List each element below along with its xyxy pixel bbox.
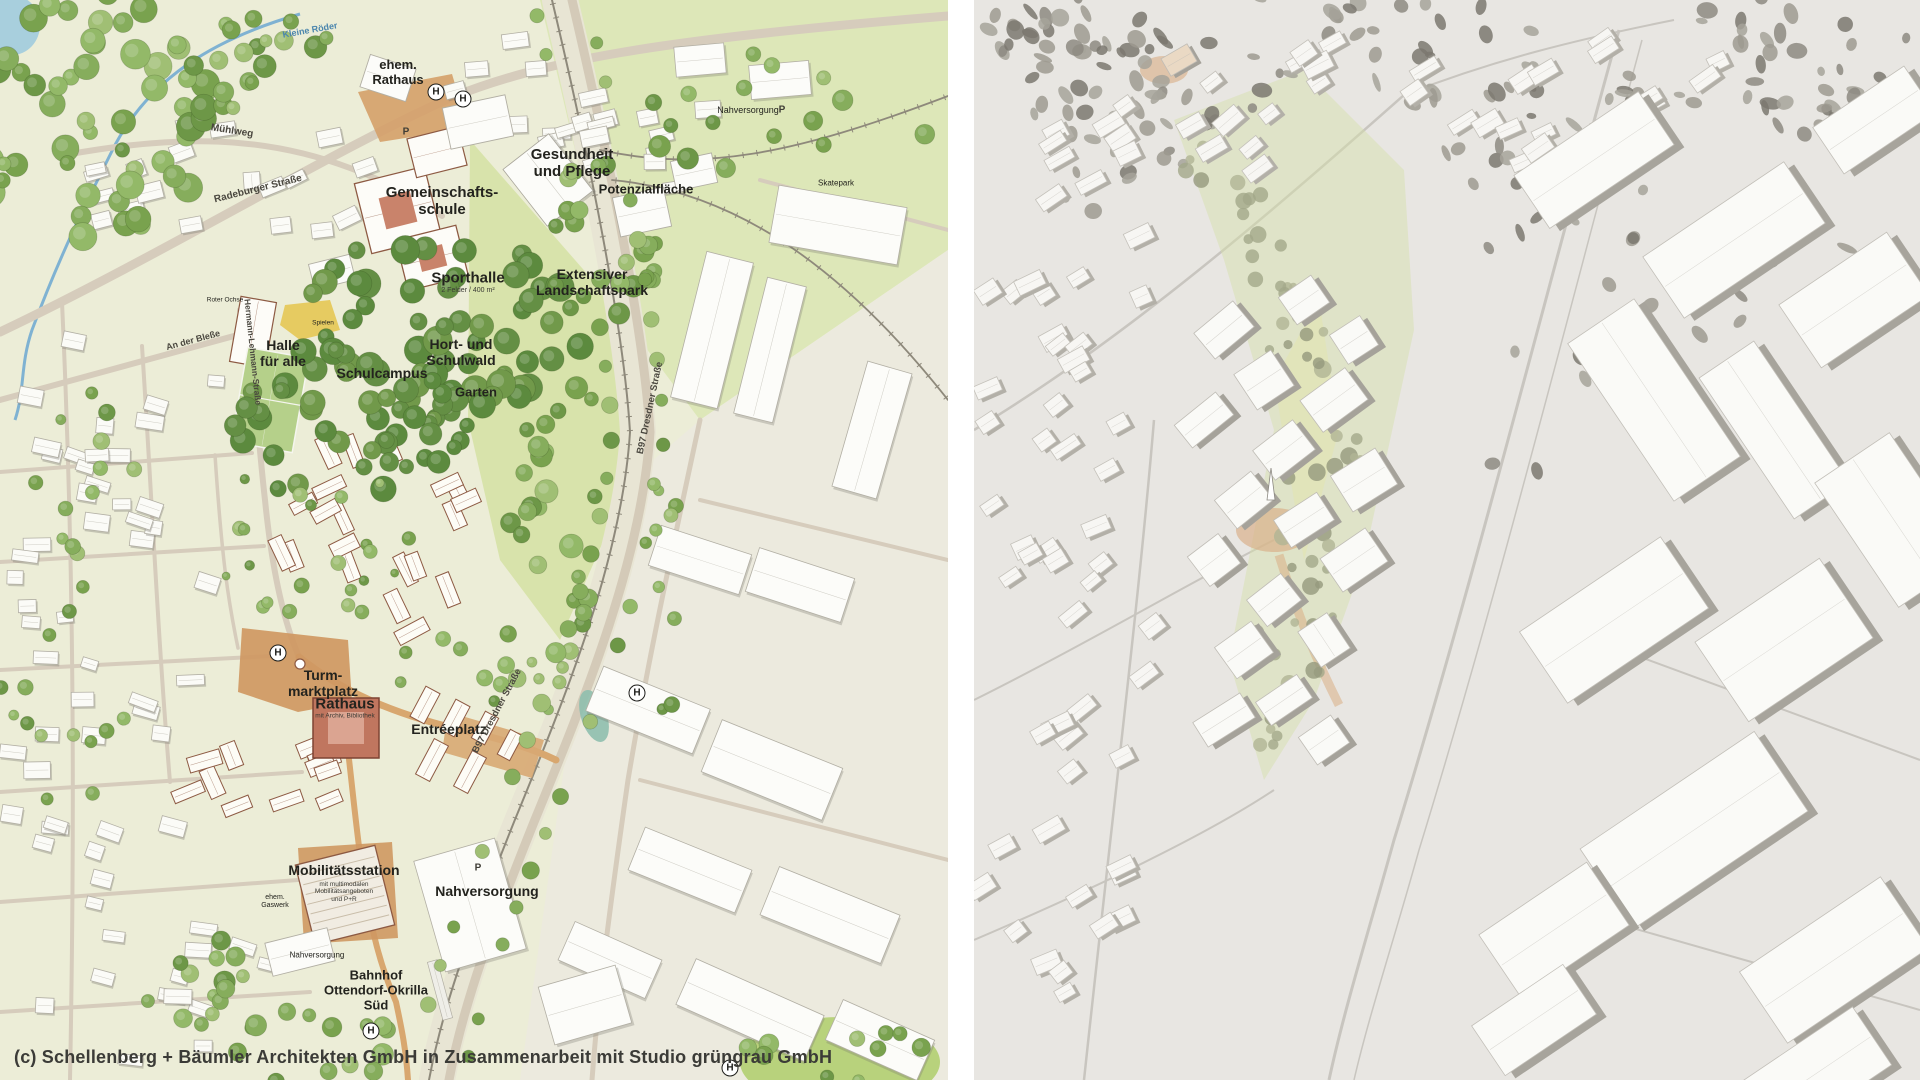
masterplan-canvas (0, 0, 948, 1080)
transit-stop-letter: H (432, 87, 439, 97)
model-3d-canvas (974, 0, 1920, 1080)
transit-stop-icon: H (455, 91, 472, 108)
transit-stop-letter: H (459, 94, 466, 104)
building (311, 222, 336, 241)
building (7, 570, 25, 586)
transit-stop-icon: H (270, 645, 287, 662)
building (0, 804, 25, 826)
building (151, 725, 172, 744)
building (465, 61, 491, 80)
building (176, 674, 206, 688)
building (0, 744, 28, 762)
building (207, 375, 226, 390)
building (270, 216, 294, 236)
building (21, 616, 42, 631)
building (83, 512, 112, 534)
transit-stop-icon: H (428, 84, 445, 101)
building (24, 762, 52, 781)
parking-icon: P (475, 863, 482, 874)
screenshot-root: Kleine Röder ehem. Rathaus Nahversorgung… (0, 0, 1920, 1080)
building (35, 997, 55, 1015)
building (164, 989, 194, 1007)
building (674, 43, 729, 80)
parking-icon: P (779, 105, 786, 116)
building (749, 60, 814, 102)
transit-stop-letter: H (274, 648, 281, 658)
attribution-text: (c) Schellenberg + Bäumler Architekten G… (14, 1047, 832, 1068)
transit-stop-letter: H (633, 688, 640, 698)
building (113, 499, 133, 512)
building (71, 692, 95, 709)
transit-stop-letter: H (367, 1026, 374, 1036)
masterplan-panel: Kleine Röder ehem. Rathaus Nahversorgung… (0, 0, 948, 1080)
transit-stop-icon: H (363, 1023, 380, 1040)
building (501, 31, 531, 51)
parking-icon: P (403, 127, 410, 138)
building (18, 599, 38, 614)
building (33, 651, 60, 667)
building (525, 60, 548, 78)
transit-stop-icon: H (629, 685, 646, 702)
model-3d-panel (974, 0, 1920, 1080)
rathaus-building (313, 698, 379, 758)
